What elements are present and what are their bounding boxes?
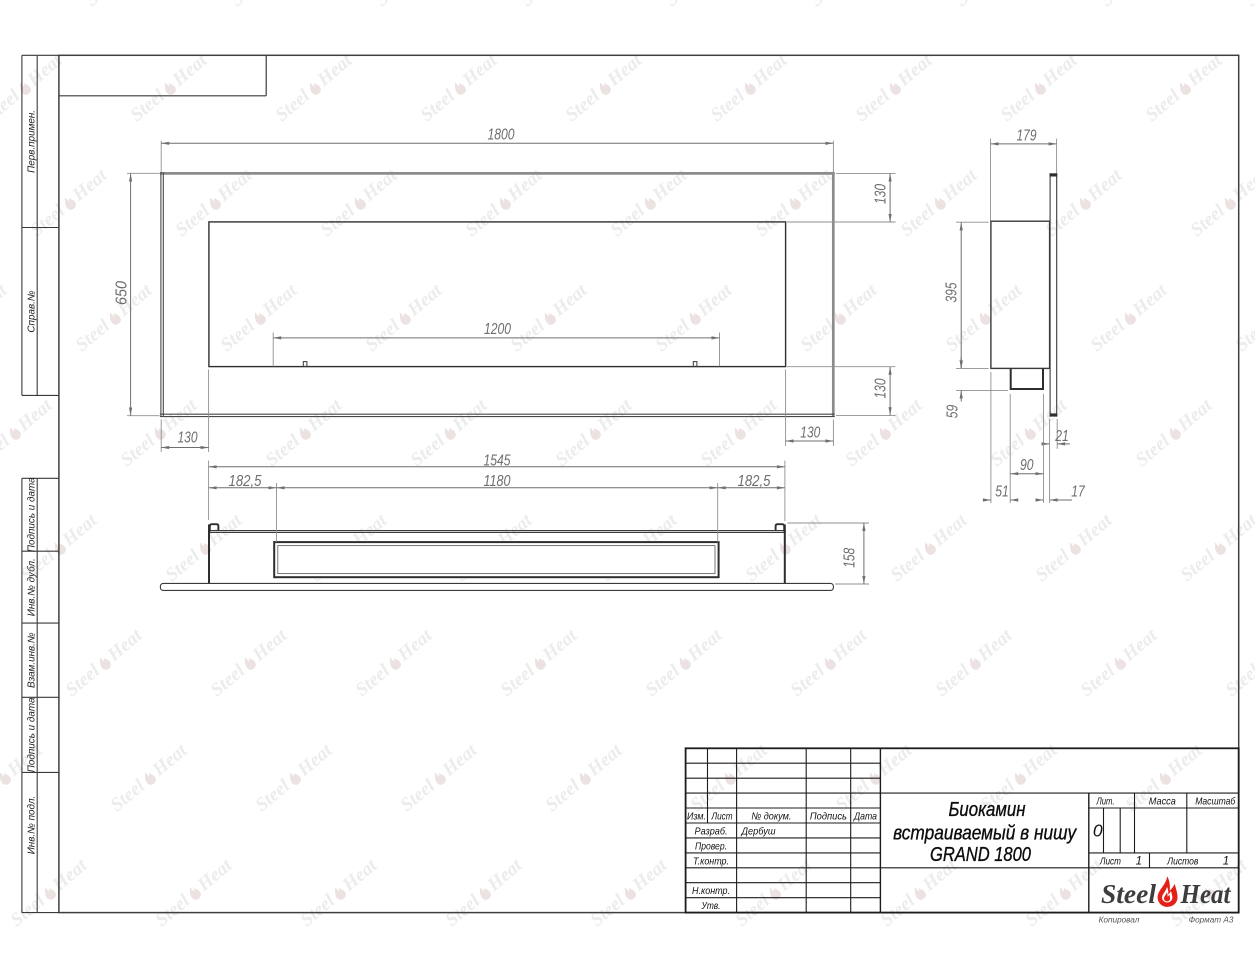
svg-text:Heat: Heat	[103, 625, 147, 667]
svg-text:Инв.№ подл.: Инв.№ подл.	[26, 796, 37, 855]
svg-text:1180: 1180	[484, 473, 511, 490]
svg-text:Steel: Steel	[561, 85, 604, 126]
svg-text:Steel: Steel	[1241, 0, 1255, 11]
svg-text:Heat: Heat	[48, 855, 92, 897]
svg-text:Heat: Heat	[303, 395, 347, 437]
svg-text:Биокамин: Биокамин	[949, 798, 1026, 821]
svg-text:Steel: Steel	[496, 660, 539, 701]
svg-text:179: 179	[1017, 127, 1037, 144]
svg-text:Steel: Steel	[606, 200, 649, 241]
svg-text:Heat: Heat	[1118, 625, 1162, 667]
svg-text:Steel: Steel	[1021, 890, 1064, 931]
svg-text:Steel: Steel	[951, 0, 994, 11]
svg-text:Steel: Steel	[551, 430, 594, 471]
svg-text:Heat: Heat	[483, 855, 527, 897]
svg-text:Steel: Steel	[396, 775, 439, 816]
svg-text:Steel: Steel	[296, 890, 339, 931]
svg-text:Heat: Heat	[738, 395, 782, 437]
svg-text:Heat: Heat	[358, 165, 402, 207]
svg-text:Heat: Heat	[1218, 510, 1255, 552]
svg-text:Изм.: Изм.	[687, 812, 706, 823]
svg-text:Steel: Steel	[931, 660, 974, 701]
svg-text:Steel: Steel	[81, 0, 124, 11]
svg-text:Heat: Heat	[873, 740, 917, 782]
svg-text:Steel: Steel	[941, 315, 984, 356]
svg-text:Копировал: Копировал	[1099, 916, 1140, 925]
svg-text:Н.контр.: Н.контр.	[692, 886, 730, 897]
svg-text:Формат А3: Формат А3	[1189, 916, 1234, 925]
svg-text:Steel: Steel	[251, 775, 294, 816]
svg-text:Heat: Heat	[683, 625, 727, 667]
svg-text:59: 59	[945, 404, 962, 418]
svg-text:Лист: Лист	[1099, 856, 1121, 867]
svg-text:Steel: Steel	[206, 660, 249, 701]
svg-text:Steel: Steel	[896, 200, 939, 241]
svg-text:Steel: Steel	[886, 545, 929, 586]
svg-text:Steel: Steel	[416, 85, 459, 126]
svg-text:Steel: Steel	[371, 0, 414, 11]
svg-text:Heat: Heat	[338, 855, 382, 897]
svg-text:Steel: Steel	[151, 890, 194, 931]
svg-text:Heat: Heat	[0, 280, 12, 322]
svg-text:Steel: Steel	[996, 85, 1039, 126]
svg-text:Steel: Steel	[586, 890, 629, 931]
svg-text:Листов: Листов	[1166, 856, 1198, 867]
svg-text:Steel: Steel	[741, 545, 784, 586]
svg-text:Steel: Steel	[1086, 315, 1129, 356]
svg-text:Heat: Heat	[1180, 879, 1232, 909]
svg-text:Heat: Heat	[693, 280, 737, 322]
svg-text:Heat: Heat	[58, 510, 102, 552]
svg-text:Steel: Steel	[161, 545, 204, 586]
svg-text:Heat: Heat	[1128, 280, 1172, 322]
svg-text:Heat: Heat	[68, 165, 112, 207]
svg-text:Подпись и дата: Подпись и дата	[26, 477, 37, 552]
svg-text:Steel: Steel	[1186, 200, 1229, 241]
svg-text:Heat: Heat	[0, 625, 2, 667]
svg-text:158: 158	[842, 548, 859, 568]
svg-text:№ докум.: № докум.	[751, 812, 791, 823]
svg-text:Steel: Steel	[516, 0, 559, 11]
svg-text:Steel: Steel	[1231, 315, 1255, 356]
svg-text:Heat: Heat	[538, 625, 582, 667]
svg-text:Heat: Heat	[783, 510, 827, 552]
svg-text:Steel: Steel	[1076, 660, 1119, 701]
svg-text:Steel: Steel	[1031, 545, 1074, 586]
svg-text:Масса: Масса	[1149, 797, 1176, 808]
svg-text:Steel: Steel	[1141, 85, 1184, 126]
svg-text:Steel: Steel	[506, 315, 549, 356]
svg-text:Steel: Steel	[71, 315, 114, 356]
svg-text:Heat: Heat	[148, 740, 192, 782]
svg-text:Steel: Steel	[661, 0, 704, 11]
svg-text:Steel: Steel	[261, 430, 304, 471]
svg-text:Steel: Steel	[651, 315, 694, 356]
svg-text:Справ.№: Справ.№	[26, 290, 37, 332]
svg-text:Heat: Heat	[1173, 395, 1217, 437]
svg-text:Heat: Heat	[828, 625, 872, 667]
svg-text:Heat: Heat	[258, 280, 302, 322]
svg-text:Heat: Heat	[1083, 165, 1127, 207]
svg-text:Провер.: Провер.	[695, 841, 727, 852]
svg-text:Утв.: Утв.	[701, 901, 721, 912]
svg-text:182,5: 182,5	[229, 473, 262, 490]
svg-text:0: 0	[1093, 821, 1103, 841]
svg-text:1545: 1545	[484, 452, 511, 469]
svg-text:Steel: Steel	[876, 890, 919, 931]
svg-text:Heat: Heat	[773, 855, 817, 897]
svg-text:Дербуш: Дербуш	[741, 825, 776, 837]
svg-text:Heat: Heat	[438, 740, 482, 782]
svg-text:Heat: Heat	[1163, 740, 1207, 782]
svg-text:130: 130	[800, 425, 820, 442]
svg-text:Heat: Heat	[293, 740, 337, 782]
svg-text:Steel: Steel	[0, 85, 25, 126]
svg-text:Дата: Дата	[853, 812, 877, 823]
svg-text:GRAND 1800: GRAND 1800	[930, 843, 1031, 866]
svg-text:Steel: Steel	[26, 200, 69, 241]
svg-text:Heat: Heat	[548, 280, 592, 322]
svg-text:Heat: Heat	[193, 855, 237, 897]
svg-text:Перв.примен.: Перв.примен.	[26, 110, 37, 173]
svg-text:Heat: Heat	[213, 165, 257, 207]
svg-text:Heat: Heat	[593, 395, 637, 437]
svg-text:Steel: Steel	[226, 0, 269, 11]
svg-text:Heat: Heat	[1073, 510, 1117, 552]
svg-text:Heat: Heat	[628, 855, 672, 897]
svg-text:Steel: Steel	[171, 200, 214, 241]
svg-text:Steel: Steel	[851, 85, 894, 126]
svg-text:Steel: Steel	[751, 200, 794, 241]
svg-text:Heat: Heat	[448, 395, 492, 437]
svg-text:182,5: 182,5	[738, 473, 771, 490]
svg-text:21: 21	[1054, 428, 1068, 445]
svg-text:Steel: Steel	[1131, 430, 1174, 471]
svg-text:Steel: Steel	[1176, 545, 1219, 586]
svg-text:650: 650	[113, 281, 130, 305]
svg-text:Steel: Steel	[731, 890, 774, 931]
svg-text:Инв.№ дубл.: Инв.№ дубл.	[26, 558, 37, 616]
svg-text:Steel: Steel	[316, 200, 359, 241]
svg-text:Разраб.: Разраб.	[695, 825, 728, 837]
svg-text:Т.контр.: Т.контр.	[693, 856, 729, 867]
svg-text:Steel: Steel	[841, 430, 884, 471]
svg-text:Steel: Steel	[1096, 0, 1139, 11]
svg-text:Heat: Heat	[403, 280, 447, 322]
svg-text:Подпись и дата: Подпись и дата	[26, 697, 37, 772]
svg-text:Steel: Steel	[216, 315, 259, 356]
svg-text:Взам.инв.№: Взам.инв.№	[26, 632, 37, 688]
svg-text:130: 130	[178, 429, 198, 446]
svg-text:Steel: Steel	[116, 430, 159, 471]
svg-text:Steel: Steel	[706, 85, 749, 126]
svg-text:Steel: Steel	[271, 85, 314, 126]
svg-text:Heat: Heat	[583, 740, 627, 782]
svg-text:Heat: Heat	[973, 625, 1017, 667]
svg-text:51: 51	[995, 483, 1009, 500]
svg-text:Heat: Heat	[393, 625, 437, 667]
svg-text:Heat: Heat	[838, 280, 882, 322]
svg-text:Steel: Steel	[1041, 200, 1084, 241]
svg-text:Steel: Steel	[441, 890, 484, 931]
svg-text:Steel: Steel	[641, 660, 684, 701]
svg-text:Steel: Steel	[831, 775, 874, 816]
svg-text:130: 130	[872, 184, 889, 204]
svg-text:встраиваемый в нишу: встраиваемый в нишу	[893, 822, 1077, 845]
svg-text:Steel: Steel	[351, 660, 394, 701]
svg-text:Steel: Steel	[1121, 775, 1164, 816]
svg-text:Подпись: Подпись	[810, 812, 847, 823]
svg-text:Steel: Steel	[696, 430, 739, 471]
svg-text:Heat: Heat	[13, 395, 57, 437]
svg-text:Heat: Heat	[503, 165, 547, 207]
svg-text:Лист: Лист	[711, 812, 733, 823]
svg-text:Heat: Heat	[3, 740, 47, 782]
svg-text:1: 1	[1223, 856, 1229, 868]
svg-text:17: 17	[1071, 483, 1086, 500]
svg-text:1200: 1200	[484, 321, 511, 338]
svg-text:1: 1	[1136, 856, 1142, 868]
svg-text:Steel: Steel	[6, 890, 49, 931]
svg-text:Steel: Steel	[541, 775, 584, 816]
svg-text:Steel: Steel	[461, 200, 504, 241]
svg-text:Heat: Heat	[648, 165, 692, 207]
svg-text:Steel: Steel	[1101, 879, 1156, 909]
svg-text:Масштаб: Масштаб	[1195, 796, 1236, 808]
svg-text:Лит.: Лит.	[1096, 797, 1115, 808]
svg-text:Steel: Steel	[406, 430, 449, 471]
svg-text:Steel: Steel	[806, 0, 849, 11]
svg-text:Steel: Steel	[61, 660, 104, 701]
svg-text:395: 395	[944, 282, 961, 302]
svg-text:Steel: Steel	[106, 775, 149, 816]
svg-text:Steel: Steel	[361, 315, 404, 356]
svg-text:Heat: Heat	[928, 510, 972, 552]
svg-text:Heat: Heat	[938, 165, 982, 207]
svg-text:Heat: Heat	[248, 625, 292, 667]
svg-text:1800: 1800	[488, 127, 515, 144]
svg-text:Heat: Heat	[793, 165, 837, 207]
svg-text:Steel: Steel	[126, 85, 169, 126]
svg-text:90: 90	[1020, 457, 1034, 474]
svg-text:Heat: Heat	[983, 280, 1027, 322]
svg-text:130: 130	[872, 378, 889, 398]
svg-text:Heat: Heat	[1018, 740, 1062, 782]
svg-text:Heat: Heat	[728, 740, 772, 782]
svg-text:Steel: Steel	[786, 660, 829, 701]
